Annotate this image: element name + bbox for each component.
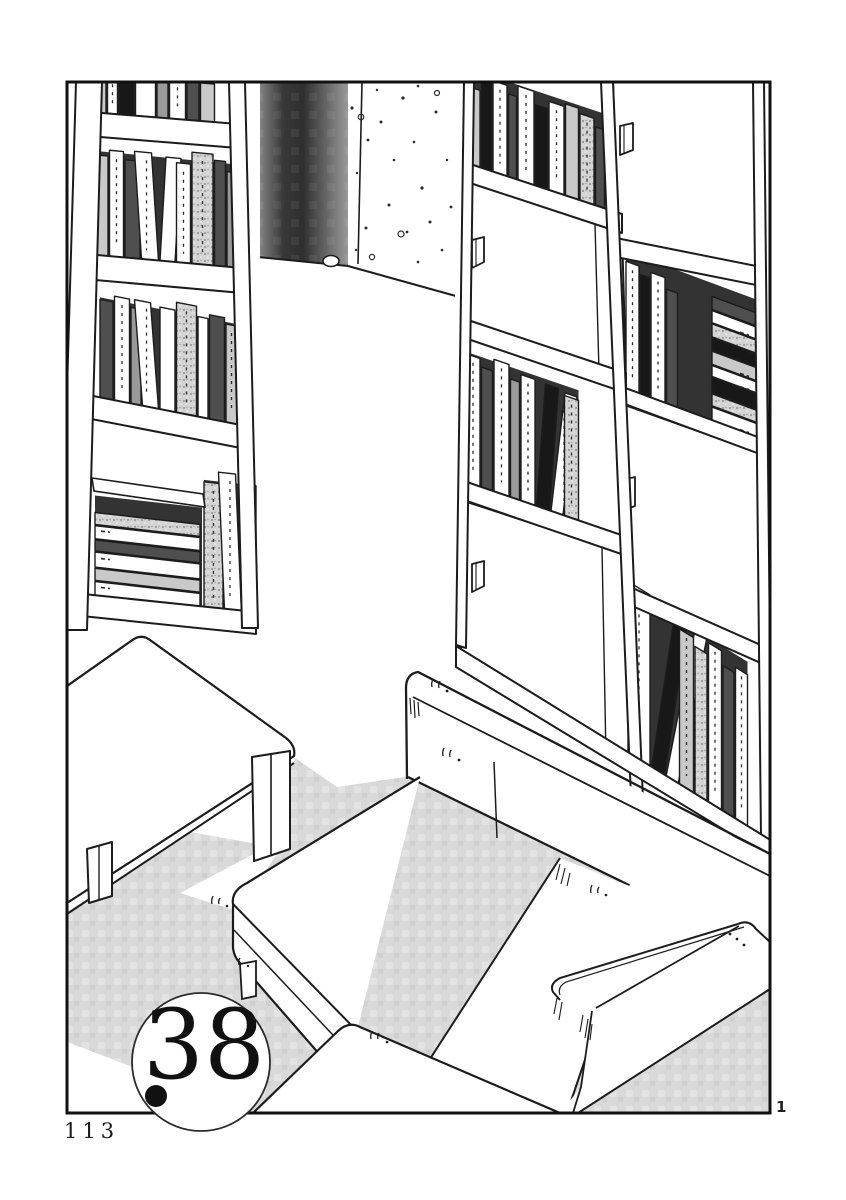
panel-artwork xyxy=(60,66,772,1113)
panel-number: 1 xyxy=(776,1098,786,1116)
page-number: 113 xyxy=(64,1119,119,1143)
left-bookshelf xyxy=(60,66,260,634)
badge-dot xyxy=(145,1085,167,1107)
chapter-number: 38 xyxy=(143,989,265,1101)
wall-base-foot xyxy=(323,256,339,267)
chapter-badge: 38 xyxy=(132,989,270,1131)
panel-illustration: 38 113 1 xyxy=(0,0,846,1200)
manga-page: 38 113 1 xyxy=(0,0,846,1200)
